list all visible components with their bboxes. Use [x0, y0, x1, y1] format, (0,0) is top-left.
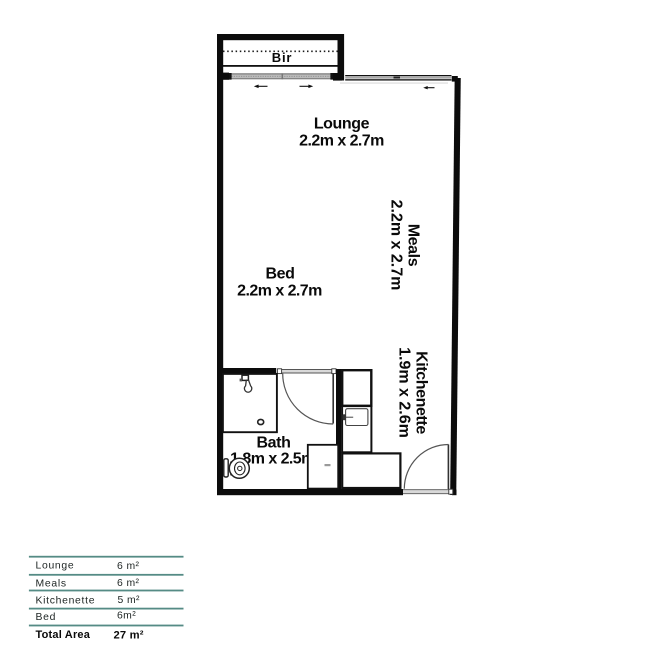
svg-text:Total Area: Total Area: [36, 629, 91, 641]
svg-text:1.9m x 2.6m: 1.9m x 2.6m: [395, 347, 412, 438]
svg-text:Kitchenette: Kitchenette: [412, 351, 429, 434]
svg-text:Bir: Bir: [272, 50, 292, 65]
svg-text:6m²: 6m²: [117, 611, 136, 622]
svg-text:2.2m x 2.7m: 2.2m x 2.7m: [237, 283, 322, 300]
svg-text:Meals: Meals: [36, 578, 67, 589]
svg-text:2.2m x 2.7m: 2.2m x 2.7m: [299, 132, 384, 149]
svg-text:6 m²: 6 m²: [117, 561, 140, 572]
svg-text:27 m²: 27 m²: [114, 629, 144, 641]
svg-text:5 m²: 5 m²: [118, 595, 141, 606]
svg-text:6 m²: 6 m²: [117, 578, 140, 589]
svg-text:2.2m x 2.7m: 2.2m x 2.7m: [388, 200, 405, 291]
svg-text:Bed: Bed: [36, 612, 57, 623]
svg-text:Meals: Meals: [404, 224, 421, 267]
svg-text:Bath: Bath: [257, 434, 291, 451]
svg-text:Bed: Bed: [265, 265, 294, 282]
svg-text:Lounge: Lounge: [314, 116, 370, 133]
svg-text:Kitchenette: Kitchenette: [36, 595, 96, 606]
svg-text:Lounge: Lounge: [36, 561, 75, 572]
